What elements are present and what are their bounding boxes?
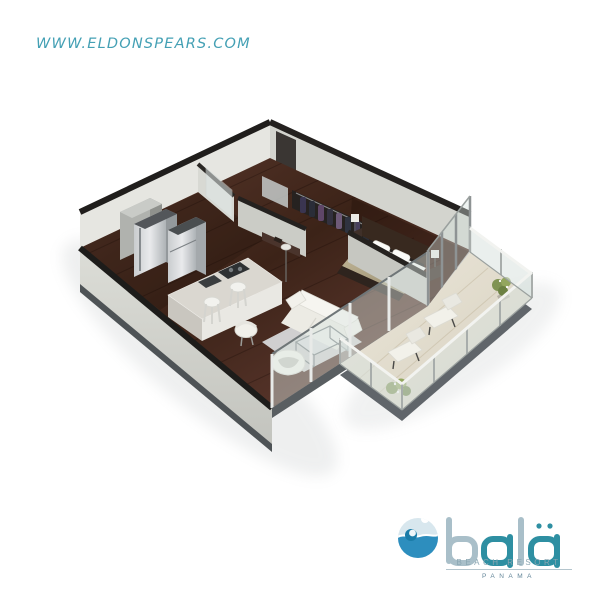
letter-b (449, 520, 475, 563)
logo-graphic (394, 512, 594, 596)
page: { "watermark": { "text": "WWW.ELDONSPEAR… (0, 0, 600, 600)
logo-country: PANAMA (446, 573, 572, 580)
floor-plan-render (0, 0, 600, 600)
wave-icon (396, 515, 440, 560)
resort-logo: balä (394, 512, 594, 596)
floor-lamp-shade (281, 244, 291, 250)
logo-subtitle: BEACH RESORT (446, 558, 572, 570)
